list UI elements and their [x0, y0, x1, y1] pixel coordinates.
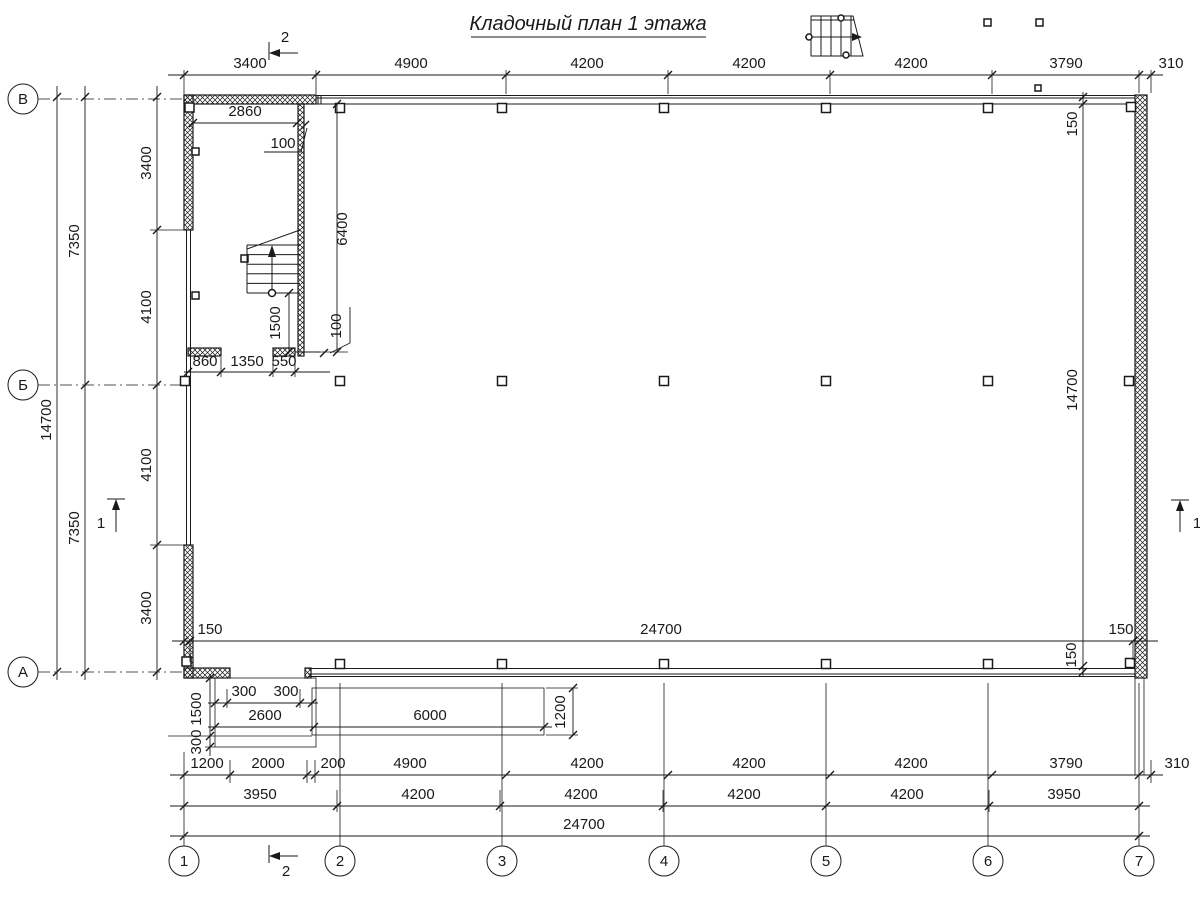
- dim-label: 4200: [570, 55, 603, 72]
- dim-label: 4200: [401, 786, 434, 803]
- dim-tick: [320, 349, 328, 357]
- dim-label: 4200: [890, 786, 923, 803]
- dim-label: 100: [270, 135, 295, 152]
- dim-label: 3400: [233, 55, 266, 72]
- dim-label: 1200: [190, 755, 223, 772]
- section-arrowhead-icon: [112, 499, 120, 510]
- dim-label: 4900: [394, 55, 427, 72]
- column-marker: [185, 103, 194, 112]
- left-wall-window: [187, 230, 191, 545]
- column-marker: [984, 660, 993, 669]
- column-marker: [336, 377, 345, 386]
- stairs-icon-arrowhead: [852, 33, 862, 41]
- column-marker: [336, 660, 345, 669]
- dim-label: 24700: [563, 816, 605, 833]
- stairs-legend-icon: [805, 15, 863, 58]
- section-label: 2: [282, 863, 290, 880]
- stairs-icon-node: [806, 34, 812, 40]
- column-marker: [498, 377, 507, 386]
- marker-square: [1035, 85, 1041, 91]
- dim-label: 1500: [188, 692, 205, 725]
- stair-up-arrow-icon: [268, 245, 276, 257]
- dim-label: 150: [1064, 111, 1081, 136]
- dim-label: 150: [1063, 642, 1080, 667]
- right-wall-masonry: [1135, 95, 1147, 678]
- column-axes: 1 2 3 4 5 6 7: [169, 846, 1154, 876]
- wall-marker: [192, 148, 199, 155]
- dim-label: 4200: [727, 786, 760, 803]
- column-marker: [181, 377, 190, 386]
- dim-label: 860: [192, 353, 217, 370]
- dim-label: 1200: [552, 695, 569, 728]
- dim-label: 150: [1108, 621, 1133, 638]
- page-title: Кладочный план 1 этажа: [469, 13, 706, 35]
- column-marker: [822, 660, 831, 669]
- stairs-icon-node: [838, 15, 844, 21]
- left-wall-masonry-upper: [184, 95, 193, 230]
- dim-label: 4200: [732, 55, 765, 72]
- dim-label: 7350: [66, 224, 83, 257]
- section-marks: 2 2 1 1: [97, 29, 1200, 880]
- column-marker: [822, 104, 831, 113]
- section-label: 2: [281, 29, 289, 46]
- stairs-icon-treads: [811, 16, 854, 56]
- dim-ticks: [189, 119, 309, 129]
- marker-square: [984, 19, 991, 26]
- interior-walls: [188, 104, 320, 356]
- porch-dimensions: 300 300 2600 6000 1200 1500 300: [188, 674, 577, 756]
- column-marker: [660, 377, 669, 386]
- wall-marker: [192, 292, 199, 299]
- stair-room-dimensions: 2860 100 6400 1500 100 860 1350 550: [184, 100, 351, 377]
- dim-label: 3790: [1049, 755, 1082, 772]
- bottom-wall-masonry: [184, 668, 230, 678]
- dim-label: 24700: [640, 621, 682, 638]
- dim-label: 3400: [138, 146, 155, 179]
- column-marker: [498, 660, 507, 669]
- dim-label: 2600: [248, 707, 281, 724]
- porch-and-ramp: [168, 678, 578, 747]
- column-marker: [1127, 103, 1136, 112]
- dim-label: 2860: [228, 103, 261, 120]
- axis-label: 3: [498, 853, 506, 870]
- bottom-wall-glazing: [308, 669, 1135, 677]
- dim-label: 7350: [66, 511, 83, 544]
- dim-label: 100: [328, 313, 345, 338]
- bottom-dimension-chains: 1200 2000 200 4900 4200 4200 4200 3790 3…: [170, 678, 1190, 846]
- row-axis-lines: [38, 99, 184, 672]
- section-label: 1: [97, 515, 105, 532]
- section-arrow-bottom-icon: [269, 845, 298, 863]
- porch-extension-lines: [168, 688, 578, 747]
- inner-width-chain: 150 24700 150: [172, 621, 1158, 662]
- axis-label: Б: [18, 377, 28, 394]
- axis-label: В: [18, 91, 28, 108]
- dim-label: 2000: [251, 755, 284, 772]
- dim-label: 4200: [732, 755, 765, 772]
- dim-label: 150: [197, 621, 222, 638]
- axis-label: 1: [180, 853, 188, 870]
- axis-label: 5: [822, 853, 830, 870]
- dim-label: 4200: [894, 55, 927, 72]
- column-marker: [984, 377, 993, 386]
- bottom-wall-stub: [305, 668, 311, 678]
- dim-label: 3400: [138, 591, 155, 624]
- dim-label: 310: [1164, 755, 1189, 772]
- dim-label: 310: [1158, 55, 1183, 72]
- dim-label: 3950: [243, 786, 276, 803]
- section-arrowhead-icon: [1176, 500, 1184, 511]
- marker-square: [1036, 19, 1043, 26]
- dim-label: 1350: [230, 353, 263, 370]
- column-marker: [660, 660, 669, 669]
- dim-label: 550: [271, 353, 296, 370]
- dim-label: 3950: [1047, 786, 1080, 803]
- masonry-plan-drawing: Кладочный план 1 этажа: [0, 0, 1200, 900]
- dim-label: 4200: [570, 755, 603, 772]
- top-wall-joint: [318, 95, 321, 104]
- dim-label: 4100: [138, 448, 155, 481]
- axis-label: 4: [660, 853, 668, 870]
- stair-break-line: [247, 230, 300, 249]
- axis-label: 6: [984, 853, 992, 870]
- dim-label: 6000: [413, 707, 446, 724]
- extension-lines: [184, 70, 1151, 94]
- dim-label: 1500: [267, 306, 284, 339]
- column-marker: [660, 104, 669, 113]
- column-marker: [822, 377, 831, 386]
- dim-label: 14700: [1064, 369, 1081, 411]
- section-arrowhead-icon: [269, 49, 280, 57]
- dim-label: 3790: [1049, 55, 1082, 72]
- exterior-walls: [184, 95, 1147, 678]
- section-arrowhead-icon: [269, 852, 280, 860]
- axis-label: 2: [336, 853, 344, 870]
- left-dimension-chains: 3400 4100 4100 3400 7350 7350 14700: [38, 86, 184, 680]
- dim-label: 300: [273, 683, 298, 700]
- top-wall-glazing: [316, 96, 1135, 105]
- right-dimension-chain: 150 14700 150: [1063, 92, 1087, 676]
- axis-label: А: [18, 664, 28, 681]
- section-label: 1: [1193, 515, 1200, 532]
- drawing-title: Кладочный план 1 этажа: [469, 13, 706, 37]
- axis-label: 7: [1135, 853, 1143, 870]
- stairs-icon-node: [843, 52, 849, 58]
- dim-label: 300: [188, 729, 205, 754]
- column-marker: [1125, 377, 1134, 386]
- stair-start-circle: [269, 290, 276, 297]
- staircase-plan: [247, 230, 300, 297]
- column-markers: [181, 19, 1136, 669]
- column-marker: [498, 104, 507, 113]
- dim-label: 4100: [138, 290, 155, 323]
- dim-label: 4200: [564, 786, 597, 803]
- dim-label: 200: [320, 755, 345, 772]
- dim-label: 14700: [38, 399, 55, 441]
- dim-label: 300: [231, 683, 256, 700]
- top-dimension-chain: 3400 4900 4200 4200 4200 3790 310: [168, 55, 1184, 94]
- column-marker: [984, 104, 993, 113]
- dim-label: 4900: [393, 755, 426, 772]
- row-axes: В Б А: [8, 84, 184, 687]
- dim-label: 6400: [334, 212, 351, 245]
- dim-label: 4200: [894, 755, 927, 772]
